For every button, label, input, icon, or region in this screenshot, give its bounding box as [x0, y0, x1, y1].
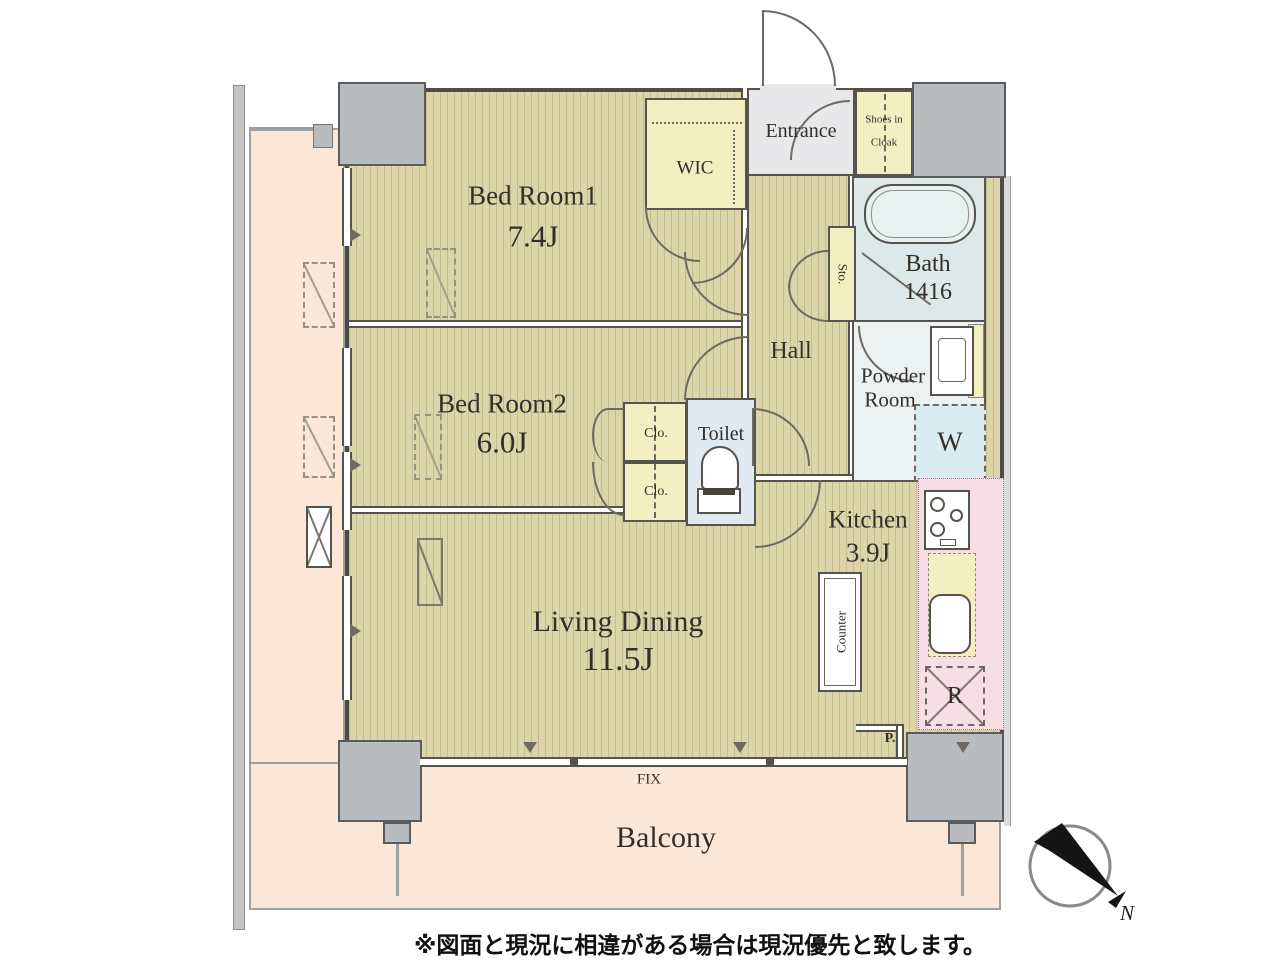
- bedroom2-furniture-solid: [417, 538, 443, 606]
- left-fence-wall: [233, 85, 245, 930]
- clo-rod: [654, 406, 656, 518]
- label-sto: Sto.: [837, 264, 850, 285]
- label-bath-name: Bath: [905, 252, 950, 276]
- fence-post-right: [948, 822, 976, 844]
- bedroom2-closet-door-arc-1: [592, 408, 624, 462]
- window-marker-3: [956, 742, 970, 753]
- fence-post-left: [383, 822, 411, 844]
- compass-needle: [1034, 823, 1118, 896]
- wall-bedroom1-bedroom2: [349, 320, 745, 328]
- label-entrance: Entrance: [765, 121, 836, 141]
- label-living-name: Living Dining: [533, 607, 704, 637]
- footnote: ※図面と現況に相違がある場合は現況優先と致します。: [340, 926, 1060, 960]
- label-clo-lower: Clo.: [644, 485, 668, 499]
- balcony-ac-unit-1: [303, 262, 335, 328]
- bedroom1-furniture-dashed: [426, 248, 456, 318]
- window-marker-1: [523, 742, 537, 753]
- fence-line-left: [396, 844, 399, 896]
- toilet-tank: [697, 488, 741, 514]
- compass: N: [1020, 808, 1160, 933]
- stove: [924, 490, 970, 550]
- wic-rod-horizontal: [652, 122, 742, 124]
- label-shoes-line1: Shoes in: [865, 115, 903, 126]
- label-bedroom1-size: 7.4J: [508, 221, 559, 252]
- washbasin: [930, 326, 974, 396]
- room-wic: [645, 98, 747, 210]
- bedroom2-furniture-dashed: [414, 414, 442, 480]
- label-hall: Hall: [770, 339, 811, 363]
- column-balcony-bottom-left: [338, 740, 422, 822]
- window-marker-left-3: [350, 624, 361, 638]
- window-mullion-2: [766, 757, 774, 767]
- label-balcony: Balcony: [616, 823, 716, 853]
- shoes-cloak-divider: [884, 94, 886, 172]
- bathtub: [864, 184, 976, 244]
- label-bedroom2-name: Bed Room2: [437, 391, 567, 418]
- label-refrigerator: R: [947, 684, 963, 708]
- label-shoes-line2: Cloak: [871, 138, 897, 149]
- window-bedroom2-left-1: [342, 348, 352, 446]
- label-wic: WIC: [677, 159, 714, 178]
- window-marker-2: [733, 742, 747, 753]
- balcony-pipe-space: [306, 506, 332, 568]
- kitchen-sink: [929, 594, 971, 654]
- floor-plan-canvas: Bed Room1 7.4J Bed Room2 6.0J Living Din…: [0, 0, 1280, 960]
- label-bedroom2-size: 6.0J: [477, 427, 528, 458]
- column-top-right: [912, 82, 1006, 178]
- label-fix-window: FIX: [637, 773, 661, 788]
- fence-line-right: [961, 844, 964, 896]
- compass-north-label: N: [1119, 901, 1135, 925]
- label-kitchen-size: 3.9J: [846, 540, 890, 567]
- balcony-ac-unit-2: [303, 416, 335, 478]
- window-living-bottom-fix: [420, 757, 907, 767]
- label-pipe: P.: [885, 732, 896, 746]
- column-bottom-right: [906, 732, 1004, 822]
- entrance-door-arc: [762, 10, 836, 86]
- column-top-left: [338, 82, 426, 166]
- window-marker-left-2: [350, 458, 361, 472]
- wall-bedroom2-living: [349, 506, 627, 514]
- label-powder-line2: Room: [864, 390, 915, 411]
- label-washer: W: [937, 429, 962, 456]
- wic-rod-vertical: [733, 130, 735, 204]
- window-mullion-1: [570, 757, 578, 767]
- window-living-left: [342, 576, 352, 700]
- label-toilet: Toilet: [698, 424, 744, 444]
- label-powder-line1: Powder: [861, 366, 925, 387]
- label-kitchen-name: Kitchen: [828, 508, 907, 533]
- balcony-partition-bracket: [313, 124, 333, 148]
- toilet-bowl: [701, 446, 739, 490]
- label-living-size: 11.5J: [582, 643, 653, 677]
- label-bath-size: 1416: [904, 280, 952, 304]
- label-clo-upper: Clo.: [644, 427, 668, 441]
- right-outer-wall: [1004, 176, 1011, 826]
- label-bedroom1-name: Bed Room1: [468, 183, 598, 210]
- label-counter: Counter: [835, 611, 848, 653]
- window-marker-left-1: [350, 228, 361, 242]
